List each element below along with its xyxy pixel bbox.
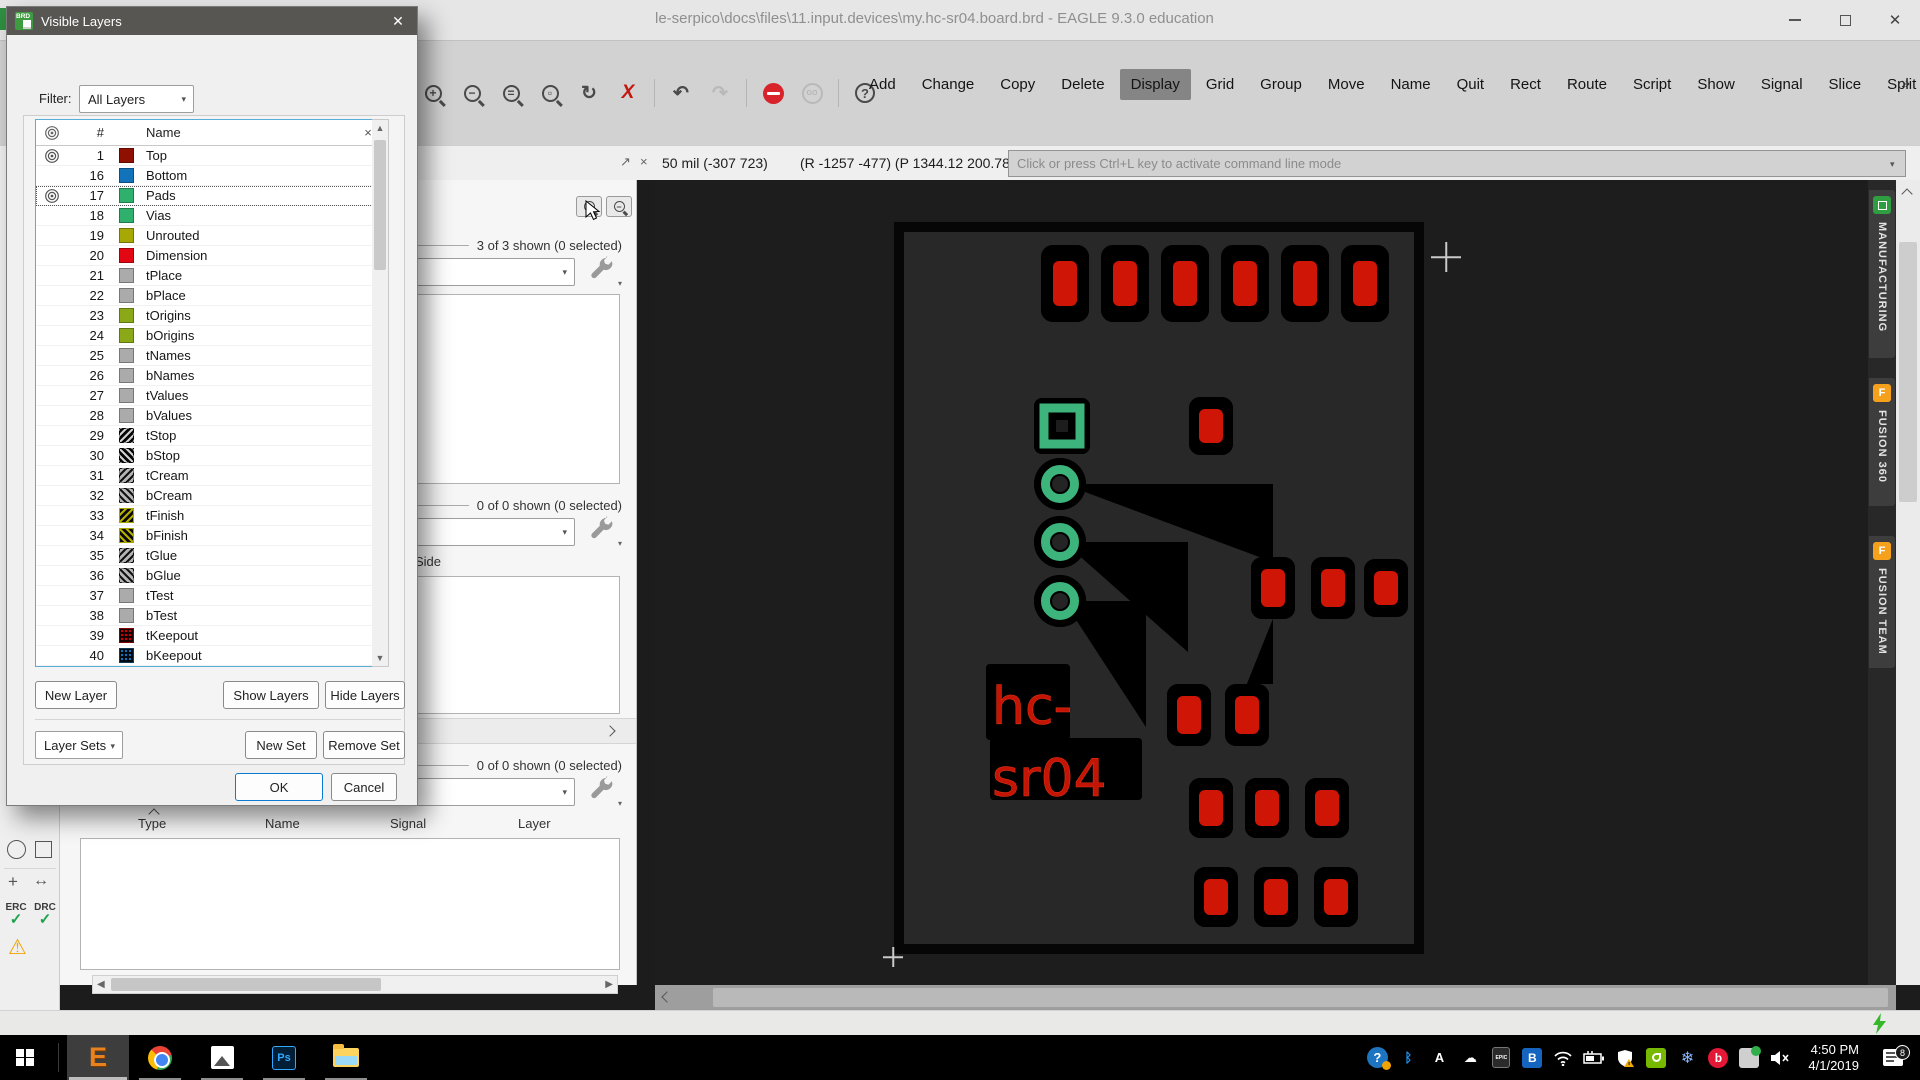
grid-coordinates: 50 mil (-307 723) xyxy=(662,155,768,171)
drc-button[interactable]: DRC✓ xyxy=(31,902,59,926)
layer-number: 33 xyxy=(68,508,112,523)
layer-number: 19 xyxy=(68,228,112,243)
layer-row[interactable]: 38 bTest xyxy=(36,606,381,626)
layer-name: Bottom xyxy=(140,168,355,183)
command-button[interactable]: Split xyxy=(1876,69,1920,100)
warning-icon[interactable]: ⚠ xyxy=(8,935,27,960)
layer-row[interactable]: 35 tGlue xyxy=(36,546,381,566)
dialog-title-bar[interactable]: BRD Visible Layers ✕ xyxy=(7,7,417,35)
layer-name: tTest xyxy=(140,588,355,603)
undo-icon[interactable]: ↶ xyxy=(668,78,694,108)
taskbar-clock[interactable]: 4:50 PM 4/1/2019 xyxy=(1800,1042,1867,1074)
command-button[interactable]: Move xyxy=(1317,69,1376,100)
eagle-application-window: le-serpico\docs\files\11.input.devices\m… xyxy=(0,0,1920,1080)
layer-color-swatch[interactable] xyxy=(112,208,140,223)
command-button[interactable]: Rect xyxy=(1499,69,1552,100)
dialog-close-icon[interactable]: ✕ xyxy=(379,7,417,35)
new-set-button[interactable]: New Set xyxy=(245,731,317,759)
photoshop-icon: Ps xyxy=(272,1046,296,1070)
layer-row[interactable]: 19 Unrouted xyxy=(36,226,381,246)
layer-visible-eye-icon[interactable] xyxy=(36,188,68,204)
layer-number: 24 xyxy=(68,328,112,343)
hide-layers-button[interactable]: Hide Layers xyxy=(325,681,405,709)
layer-row[interactable]: 20 Dimension xyxy=(36,246,381,266)
layer-row[interactable]: 28 bValues xyxy=(36,406,381,426)
photos-icon xyxy=(211,1046,234,1069)
layer-row[interactable]: 23 tOrigins xyxy=(36,306,381,326)
layer-name: Pads xyxy=(140,188,355,203)
layer-number: 21 xyxy=(68,268,112,283)
blue-b-icon[interactable]: B xyxy=(1522,1048,1542,1068)
taskbar-app-explorer[interactable] xyxy=(315,1035,377,1080)
layer-name: tOrigins xyxy=(140,308,355,323)
layer-number: 39 xyxy=(68,628,112,643)
bluetooth-icon[interactable]: ᛒ xyxy=(1397,1047,1419,1069)
layer-name: tValues xyxy=(140,388,355,403)
layer-name: bOrigins xyxy=(140,328,355,343)
command-button[interactable]: Name xyxy=(1380,69,1442,100)
scrollbar-thumb[interactable] xyxy=(1899,242,1917,502)
notification-center-button[interactable]: 8 xyxy=(1876,1049,1910,1066)
chevron-down-icon: ▾ xyxy=(562,267,567,278)
taskbar-app-photoshop[interactable]: Ps xyxy=(253,1035,315,1080)
layer-row[interactable]: 34 bFinish xyxy=(36,526,381,546)
layer-color-swatch[interactable] xyxy=(112,248,140,263)
chevron-down-icon: ▾ xyxy=(181,94,186,105)
layer-row[interactable]: 1 Top xyxy=(36,146,381,166)
dialog-title: Visible Layers xyxy=(41,14,122,29)
layer-color-swatch[interactable] xyxy=(112,428,140,443)
command-button[interactable]: Grid xyxy=(1195,69,1245,100)
layer-color-swatch[interactable] xyxy=(112,388,140,403)
layer-number: 17 xyxy=(68,188,112,203)
defender-shield-icon[interactable] xyxy=(1614,1047,1636,1069)
command-button[interactable]: Slice xyxy=(1818,69,1873,100)
layer-row[interactable]: 33 tFinish xyxy=(36,506,381,526)
scrollbar-thumb[interactable] xyxy=(713,988,1888,1007)
layer-row[interactable]: 39 tKeepout xyxy=(36,626,381,646)
layer-row[interactable]: 30 bStop xyxy=(36,446,381,466)
tab-fusion-360[interactable]: F FUSION 360 xyxy=(1869,378,1895,506)
command-button[interactable]: Delete xyxy=(1050,69,1115,100)
layer-row[interactable]: 27 tValues xyxy=(36,386,381,406)
layer-number: 1 xyxy=(68,148,112,163)
stop-icon[interactable] xyxy=(760,78,786,108)
layer-name: bCream xyxy=(140,488,355,503)
command-history-dropdown-icon[interactable]: ▾ xyxy=(1890,159,1895,170)
scroll-left-icon[interactable] xyxy=(661,991,672,1002)
wifi-icon[interactable] xyxy=(1552,1047,1574,1069)
layer-color-swatch[interactable] xyxy=(112,608,140,623)
go-icon[interactable]: GO xyxy=(799,78,825,108)
layer-filter-dropdown[interactable]: All Layers ▾ xyxy=(79,85,194,113)
start-button[interactable] xyxy=(0,1035,50,1080)
layer-name: tFinish xyxy=(140,508,355,523)
layer-name: bNames xyxy=(140,368,355,383)
toolbar-divider xyxy=(654,79,655,107)
zoom-fit-icon[interactable]: = xyxy=(498,78,524,108)
column-header-signal[interactable]: Signal xyxy=(390,816,426,831)
divider xyxy=(4,868,56,869)
layer-number: 32 xyxy=(68,488,112,503)
taskbar-app-chrome[interactable] xyxy=(129,1035,191,1080)
layer-color-swatch[interactable] xyxy=(112,308,140,323)
maximize-button[interactable] xyxy=(1820,0,1870,40)
layer-row[interactable]: 16 Bottom xyxy=(36,166,381,186)
layer-number: 40 xyxy=(68,648,112,663)
fusion-team-icon: F xyxy=(1873,542,1891,560)
layer-number: 22 xyxy=(68,288,112,303)
ok-button[interactable]: OK xyxy=(235,773,323,801)
layer-color-swatch[interactable] xyxy=(112,268,140,283)
command-buttons: AddChangeCopyDeleteDisplayGridGroupMoveN… xyxy=(858,69,1920,100)
chevron-down-icon: ▾ xyxy=(562,787,567,798)
tab-manufacturing[interactable]: MANUFACTURING xyxy=(1869,190,1895,358)
board-canvas[interactable]: hc- sr04 xyxy=(655,180,1868,985)
brd-file-icon: BRD xyxy=(15,12,33,30)
command-button[interactable]: Show xyxy=(1686,69,1746,100)
layer-name: tPlace xyxy=(140,268,355,283)
layer-number: 35 xyxy=(68,548,112,563)
layer-name: tNames xyxy=(140,348,355,363)
layer-color-swatch[interactable] xyxy=(112,448,140,463)
window-title: le-serpico\docs\files\11.input.devices\m… xyxy=(655,10,1214,27)
layer-color-swatch[interactable] xyxy=(112,168,140,183)
layer-name: bGlue xyxy=(140,568,355,583)
column-header-side: Side xyxy=(415,554,441,569)
layer-row[interactable]: 32 bCream xyxy=(36,486,381,506)
mark-tool-icon[interactable]: + xyxy=(8,872,18,892)
windows-logo-icon xyxy=(16,1049,34,1067)
layer-name: tGlue xyxy=(140,548,355,563)
scroll-up-icon[interactable] xyxy=(1901,188,1912,199)
divider xyxy=(58,1043,59,1072)
file-explorer-icon xyxy=(333,1048,359,1067)
layer-row[interactable]: 40 bKeepout xyxy=(36,646,381,666)
layer-name: tStop xyxy=(140,428,355,443)
layer-number: 18 xyxy=(68,208,112,223)
command-line-input[interactable] xyxy=(1008,150,1906,177)
command-button[interactable]: Display xyxy=(1120,69,1191,100)
visibility-eye-icon[interactable] xyxy=(36,125,68,141)
layer-name: Vias xyxy=(140,208,355,223)
column-header-name[interactable]: Name xyxy=(140,125,355,140)
layer-number: 38 xyxy=(68,608,112,623)
layer-number: 23 xyxy=(68,308,112,323)
settings-wrench-icon[interactable]: ▾ xyxy=(588,256,618,286)
erc-button[interactable]: ERC✓ xyxy=(2,902,30,926)
layer-number: 26 xyxy=(68,368,112,383)
settings-wrench-icon[interactable]: ▾ xyxy=(588,776,618,806)
layer-color-swatch[interactable] xyxy=(112,188,140,203)
layer-name: bKeepout xyxy=(140,648,355,663)
chevron-down-icon: ▾ xyxy=(562,527,567,538)
canvas-horizontal-scrollbar[interactable] xyxy=(655,985,1896,1010)
column-header-layer[interactable]: Layer xyxy=(518,816,551,831)
layer-row[interactable]: 22 bPlace xyxy=(36,286,381,306)
layer-row[interactable]: 26 bNames xyxy=(36,366,381,386)
epic-games-icon[interactable]: EPIC xyxy=(1492,1047,1510,1068)
command-button[interactable]: Quit xyxy=(1446,69,1496,100)
layer-number: 31 xyxy=(68,468,112,483)
nvidia-icon[interactable] xyxy=(1646,1048,1666,1068)
cancel-button[interactable]: Cancel xyxy=(331,773,397,801)
layer-color-swatch[interactable] xyxy=(112,328,140,343)
origin-crosshair xyxy=(883,947,903,967)
minimize-button[interactable] xyxy=(1770,0,1820,40)
layer-color-swatch[interactable] xyxy=(112,368,140,383)
column-header-name[interactable]: Name xyxy=(265,816,300,831)
layer-color-swatch[interactable] xyxy=(112,628,140,643)
layer-color-swatch[interactable] xyxy=(112,408,140,423)
scrollbar-thumb[interactable] xyxy=(111,978,381,991)
layer-name: bFinish xyxy=(140,528,355,543)
taskbar-app-photos[interactable] xyxy=(191,1035,253,1080)
zoom-out-icon[interactable]: − xyxy=(459,78,485,108)
layer-number: 28 xyxy=(68,408,112,423)
layer-number: 25 xyxy=(68,348,112,363)
chrome-icon xyxy=(148,1046,172,1070)
silkscreen-text-line1: hc- xyxy=(992,677,1072,737)
taskbar: E Ps ? ᛒ A ☁ EPIC B xyxy=(0,1035,1920,1080)
command-button[interactable]: Copy xyxy=(989,69,1046,100)
manufacturing-icon xyxy=(1873,196,1891,214)
layer-row[interactable]: 29 tStop xyxy=(36,426,381,446)
scroll-right-icon[interactable]: ▶ xyxy=(605,979,613,990)
mouse-cursor xyxy=(584,200,602,222)
settings-wrench-icon[interactable]: ▾ xyxy=(588,516,618,546)
command-button[interactable]: Route xyxy=(1556,69,1618,100)
layer-name: Unrouted xyxy=(140,228,355,243)
cancel-icon[interactable]: X xyxy=(615,78,641,108)
scrollbar-thumb[interactable] xyxy=(374,140,386,270)
layer-name: Top xyxy=(140,148,355,163)
signal-list[interactable] xyxy=(80,838,620,970)
layer-color-swatch[interactable] xyxy=(112,348,140,363)
status-row xyxy=(0,1010,1920,1035)
layer-row[interactable]: 37 tTest xyxy=(36,586,381,606)
layer-color-swatch[interactable] xyxy=(112,548,140,563)
panel-float-icon[interactable]: ↗ xyxy=(620,154,631,170)
visible-layers-dialog: BRD Visible Layers ✕ Filter: All Layers … xyxy=(6,6,418,806)
volume-muted-icon[interactable] xyxy=(1769,1047,1791,1069)
layer-visible-eye-icon[interactable] xyxy=(36,148,68,164)
layer-row[interactable]: 36 bGlue xyxy=(36,566,381,586)
zoom-in-icon[interactable]: + xyxy=(420,78,446,108)
layer-color-swatch[interactable] xyxy=(112,648,140,663)
show-layers-button[interactable]: Show Layers xyxy=(223,681,319,709)
layer-color-swatch[interactable] xyxy=(112,228,140,243)
layer-color-swatch[interactable] xyxy=(112,508,140,523)
toolbar-divider xyxy=(838,79,839,107)
layer-name: tCream xyxy=(140,468,355,483)
layer-row[interactable]: 21 tPlace xyxy=(36,266,381,286)
pcb-board: hc- sr04 xyxy=(894,222,1424,954)
close-button[interactable]: ✕ xyxy=(1870,0,1920,40)
time-text: 4:50 PM xyxy=(1808,1042,1859,1058)
command-button[interactable]: Script xyxy=(1622,69,1682,100)
layer-name: Dimension xyxy=(140,248,355,263)
command-button[interactable]: Change xyxy=(911,69,986,100)
fusion-360-icon: F xyxy=(1873,384,1891,402)
circle-tool-icon[interactable] xyxy=(7,840,26,859)
window-controls: ✕ xyxy=(1770,0,1920,40)
toolbar-divider xyxy=(746,79,747,107)
zoom-toolbar: + − = ▫ ↻ X ↶ ↷ GO ? xyxy=(420,73,878,113)
layer-color-swatch[interactable] xyxy=(112,488,140,503)
system-tray: ? ᛒ A ☁ EPIC B ❄ b 4:50 PM 4/ xyxy=(1366,1035,1920,1080)
layer-color-swatch[interactable] xyxy=(112,288,140,303)
autodesk-icon[interactable]: A xyxy=(1428,1047,1450,1069)
erc-check-icon: ✓ xyxy=(2,913,30,926)
silkscreen-text-line2: sr04 xyxy=(992,749,1107,809)
beats-icon[interactable]: b xyxy=(1708,1048,1728,1068)
layer-color-swatch[interactable] xyxy=(112,568,140,583)
layer-color-swatch[interactable] xyxy=(112,468,140,483)
toolbar-overflow-icon[interactable]: » xyxy=(1901,75,1910,93)
layer-row[interactable]: 31 tCream xyxy=(36,466,381,486)
layer-color-swatch[interactable] xyxy=(112,588,140,603)
layer-number: 16 xyxy=(68,168,112,183)
remove-set-button[interactable]: Remove Set xyxy=(323,731,405,759)
layer-table-scrollbar[interactable]: ▲ ▼ xyxy=(372,119,389,667)
layer-table: # Name × 1 Top 16 xyxy=(35,119,382,667)
right-tab-strip: MANUFACTURING F FUSION 360 F FUSION TEAM xyxy=(1868,180,1896,985)
layer-name: tKeepout xyxy=(140,628,355,643)
sync-app-icon[interactable] xyxy=(1739,1048,1759,1068)
relative-coordinates: (R -1257 -477) (P 1344.12 200.78°) xyxy=(800,155,1020,171)
layer-number: 30 xyxy=(68,448,112,463)
layer-row[interactable]: 18 Vias xyxy=(36,206,381,226)
filter-label: Filter: xyxy=(39,91,72,106)
scroll-down-icon[interactable]: ▼ xyxy=(372,650,388,666)
divider xyxy=(35,719,401,720)
panel-horizontal-scrollbar[interactable]: ◀ ▶ xyxy=(92,975,618,994)
date-text: 4/1/2019 xyxy=(1808,1058,1859,1074)
expand-right-icon xyxy=(604,725,615,736)
quick-zoom-out-button[interactable]: − xyxy=(606,196,632,217)
layer-name: bPlace xyxy=(140,288,355,303)
taskbar-app-eagle[interactable]: E xyxy=(67,1035,129,1080)
command-button[interactable]: Add xyxy=(858,69,907,100)
layer-row[interactable]: 25 tNames xyxy=(36,346,381,366)
help-tray-icon[interactable]: ? xyxy=(1367,1047,1388,1068)
layer-number: 34 xyxy=(68,528,112,543)
layer-number: 29 xyxy=(68,428,112,443)
rect-tool-icon[interactable] xyxy=(35,841,52,858)
notification-badge: 8 xyxy=(1895,1045,1910,1060)
redraw-icon[interactable]: ↻ xyxy=(576,78,602,108)
power-bolt-icon xyxy=(1870,1013,1888,1035)
tab-fusion-team[interactable]: F FUSION TEAM xyxy=(1869,536,1895,668)
layer-number: 27 xyxy=(68,388,112,403)
column-header-number[interactable]: # xyxy=(68,125,112,140)
zoom-select-icon[interactable]: ▫ xyxy=(537,78,563,108)
chevron-down-icon: ▾ xyxy=(110,741,115,752)
layer-number: 36 xyxy=(68,568,112,583)
command-button[interactable]: Group xyxy=(1249,69,1313,100)
command-button[interactable]: Signal xyxy=(1750,69,1814,100)
layer-name: bValues xyxy=(140,408,355,423)
battery-icon[interactable] xyxy=(1583,1047,1605,1069)
redo-icon[interactable]: ↷ xyxy=(707,78,733,108)
panel-close-icon[interactable]: × xyxy=(640,154,648,169)
layer-color-swatch[interactable] xyxy=(112,528,140,543)
measure-tool-icon[interactable]: ↔ xyxy=(33,872,49,890)
layer-number: 37 xyxy=(68,588,112,603)
cloud-icon[interactable]: ☁ xyxy=(1459,1047,1481,1069)
layer-row[interactable]: 24 bOrigins xyxy=(36,326,381,346)
scroll-left-icon[interactable]: ◀ xyxy=(97,979,105,990)
canvas-vertical-scrollbar[interactable] xyxy=(1896,180,1920,985)
layer-row[interactable]: 17 Pads xyxy=(36,186,381,206)
scroll-up-icon[interactable]: ▲ xyxy=(372,120,388,136)
layer-name: bTest xyxy=(140,608,355,623)
crosshair-cursor xyxy=(1431,242,1461,272)
layer-sets-dropdown[interactable]: Layer Sets ▾ xyxy=(35,731,123,759)
new-layer-button[interactable]: New Layer xyxy=(35,681,117,709)
snowflake-icon[interactable]: ❄ xyxy=(1676,1047,1698,1069)
layer-color-swatch[interactable] xyxy=(112,148,140,163)
layer-number: 20 xyxy=(68,248,112,263)
layer-table-header: # Name × xyxy=(36,120,381,146)
eagle-icon: E xyxy=(89,1042,107,1073)
drc-check-icon: ✓ xyxy=(31,913,59,926)
layer-name: bStop xyxy=(140,448,355,463)
